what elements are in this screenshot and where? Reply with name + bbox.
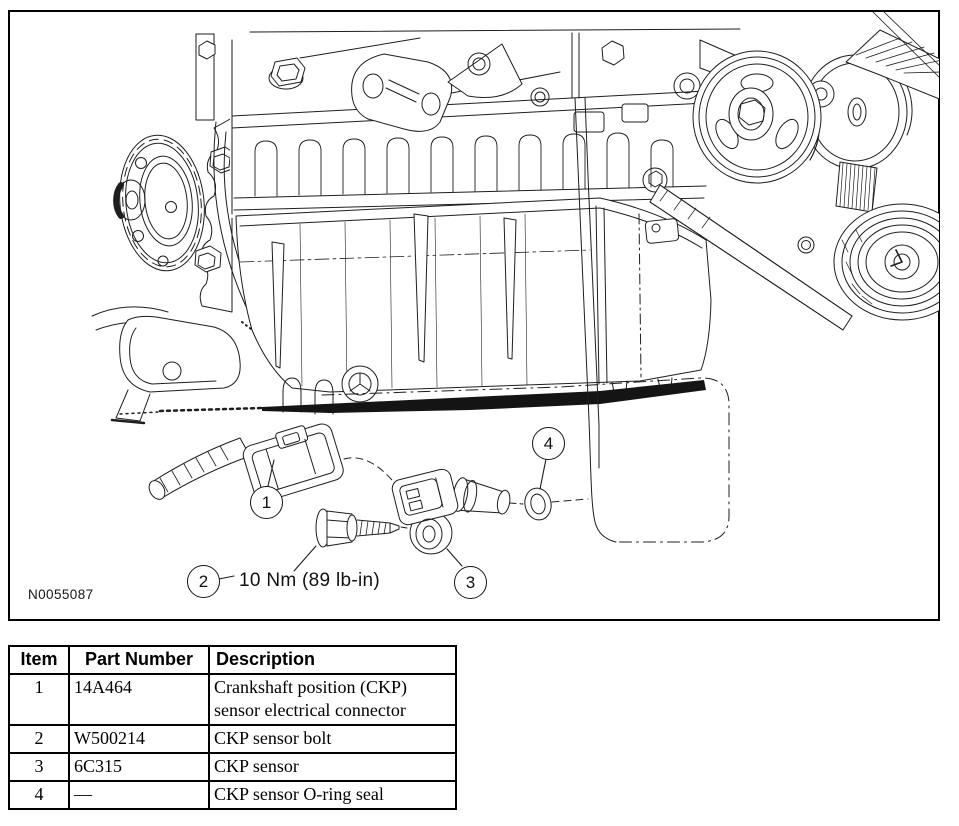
callout-2: 2 (187, 565, 220, 598)
callout-3: 3 (454, 566, 487, 599)
callout-4: 4 (532, 427, 565, 460)
cell-item: 3 (9, 753, 69, 781)
manual-page: 1 2 3 4 10 Nm (89 lb-in) N0055087 Item P… (0, 0, 959, 826)
table-row: 2 W500214 CKP sensor bolt (9, 725, 456, 753)
cell-item: 1 (9, 674, 69, 725)
callout-4-number: 4 (544, 434, 553, 454)
cell-description: CKP sensor O-ring seal (209, 781, 456, 809)
figure-id-label: N0055087 (28, 587, 94, 602)
ckp-oring (522, 486, 554, 523)
mount-bracket (92, 307, 240, 423)
cell-item: 2 (9, 725, 69, 753)
ckp-connector (146, 418, 346, 504)
header-item: Item (9, 646, 69, 674)
table-row: 3 6C315 CKP sensor (9, 753, 456, 781)
torque-label: 10 Nm (89 lb-in) (239, 570, 380, 592)
table-row: 4 — CKP sensor O-ring seal (9, 781, 456, 809)
callout-2-number: 2 (199, 572, 208, 592)
cell-description: CKP sensor bolt (209, 725, 456, 753)
cell-part-number: W500214 (69, 725, 209, 753)
callout-1-number: 1 (262, 493, 271, 513)
cell-part-number: — (69, 781, 209, 809)
cell-part-number: 14A464 (69, 674, 209, 725)
cell-description: Crankshaft position (CKP) sensor electri… (209, 674, 456, 725)
ckp-bolt (316, 509, 399, 547)
engine-illustration (0, 0, 959, 630)
cell-description: CKP sensor (209, 753, 456, 781)
callout-3-number: 3 (466, 573, 475, 593)
cell-item: 4 (9, 781, 69, 809)
ckp-sensor (390, 467, 512, 554)
header-description: Description (209, 646, 456, 674)
cell-part-number: 6C315 (69, 753, 209, 781)
header-part-number: Part Number (69, 646, 209, 674)
engine-block (196, 28, 772, 218)
callout-1: 1 (250, 486, 283, 519)
table-row: 1 14A464 Crankshaft position (CKP) senso… (9, 674, 456, 725)
parts-table: Item Part Number Description 1 14A464 Cr… (8, 645, 457, 810)
table-header-row: Item Part Number Description (9, 646, 456, 674)
